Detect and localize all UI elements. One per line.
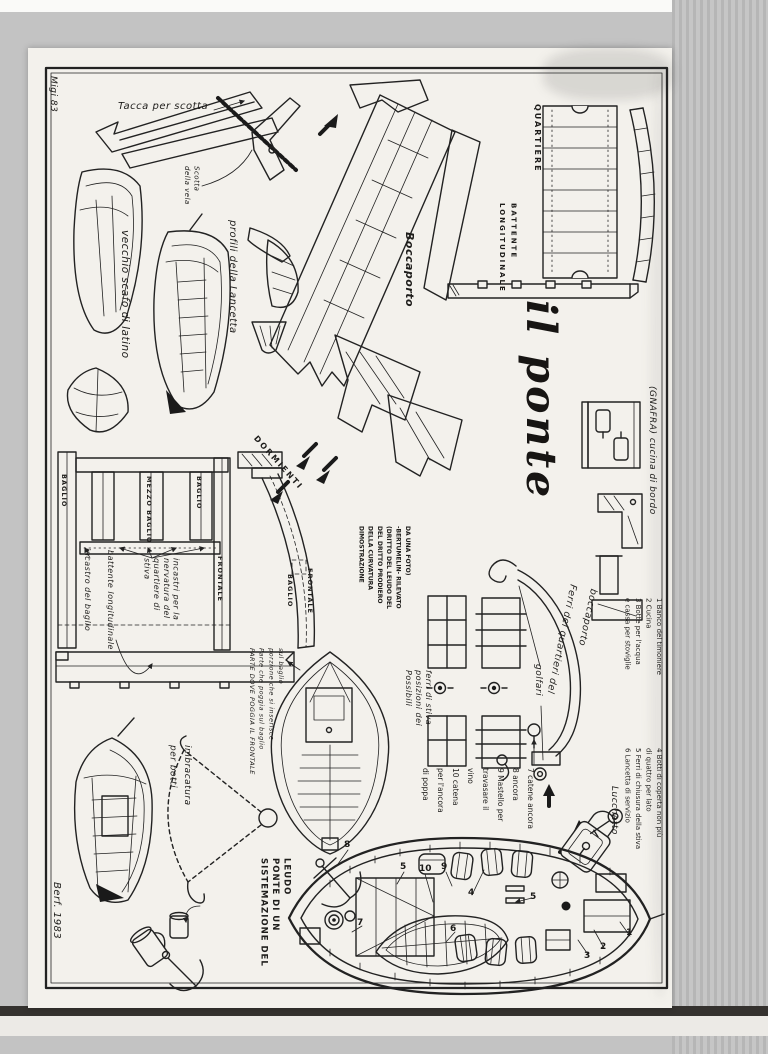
label-line: nervatura del	[161, 558, 171, 620]
dormienti-curved-piece	[238, 452, 314, 648]
label-frontale-curve: FRONTALE	[306, 568, 314, 614]
plan-callout: 5	[530, 892, 536, 902]
legend-items-1-3: 1 Banco del timoniere 2 Cucina 3 Botte p…	[622, 598, 664, 675]
plan-sheet	[28, 48, 672, 1008]
plan-callout: 1	[626, 928, 632, 938]
jug-and-grapnel-sketch	[128, 906, 203, 991]
plan-callout: 7	[357, 918, 363, 928]
legend-line: di quattro per lato	[643, 748, 654, 849]
label-baglio-left: BAGLIO	[60, 474, 68, 507]
legend-items-4-6: 4 Botti di coperta non più di quattro pe…	[622, 748, 664, 849]
label-possibili-posizioni: Possibili posizioni dei ferri di stiva	[403, 670, 433, 726]
label-line: ferri di stiva	[423, 670, 433, 726]
label-dimostrazione-curvatura: DIMOSTRAZIONE DELLA CURVATURA DEL DRITTO…	[356, 526, 412, 609]
label-line: PARTE DOVE POGGIA IL FRONTALE	[246, 648, 256, 775]
label-line: Scotta	[191, 166, 201, 205]
plan-callout: 4	[468, 888, 474, 898]
legend-items-7-10: 7 catene ancora 8 ancora 9 Mastello per …	[418, 768, 538, 829]
ferri-di-stiva-grids	[427, 596, 526, 768]
label-baglio-right: BAGLIO	[195, 476, 203, 509]
label-line: SISTEMAZIONE DEL	[257, 858, 268, 967]
legend-line: vino	[463, 768, 478, 829]
label-line: Parte che poggia sul baglio	[256, 648, 266, 775]
legend-line: 10 catena	[448, 768, 463, 829]
legend-line: 7 catene ancora	[523, 768, 538, 829]
curved-lamination-drawing	[630, 108, 655, 282]
label-line: DELLA CURVATURA	[365, 526, 374, 609]
label-line: BATTENTE	[507, 203, 518, 293]
label-line: porzione che si inserisce	[266, 648, 276, 775]
label-baglio-curve: BAGLIO	[286, 574, 294, 607]
hull-profile-bottom-left	[75, 718, 153, 902]
hull-profile-old-lateen	[74, 169, 142, 333]
label-lucchetto: Lucchetto	[609, 786, 619, 835]
legend-line: 3 Botte per l'acqua	[633, 598, 644, 675]
label-parte-frontale-block: PARTE DOVE POGGIA IL FRONTALE Parte che …	[246, 648, 285, 775]
legend-line: di poppa	[418, 768, 433, 829]
label-line: LEUDO	[280, 858, 291, 967]
artist-mark: Migi 83	[48, 76, 58, 112]
label-line: LONGITUDINALE	[496, 203, 507, 293]
label-line: per botti	[165, 745, 179, 806]
label-line: DIMOSTRAZIONE	[356, 526, 365, 609]
label-incastri-nervatura: incastri per la nervatura del quartiere …	[142, 558, 180, 620]
label-line: Possibili	[403, 670, 413, 726]
legend-line: 2 Cucina	[643, 598, 654, 675]
plan-callout: 6	[450, 924, 456, 934]
label-battente-longitudinale-hand: battente longitudinale	[106, 550, 115, 650]
legend-line: 8 ancora	[508, 768, 523, 829]
label-line: della vela	[181, 166, 191, 205]
label-line: quartiere di	[152, 558, 162, 620]
label-vecchio-scafo: vecchio scafo di latino	[119, 230, 131, 359]
lancetta-profile-sketch	[248, 228, 298, 353]
label-imbracatura-per-botti: imbracatura per botti	[165, 745, 194, 806]
label-line: imbracatura	[179, 745, 193, 806]
label-line: stiva	[142, 558, 152, 620]
label-golfari: golfari	[533, 664, 543, 696]
label-profili-lancetta: profili della Lancetta	[227, 220, 238, 334]
legend-line: 6 Lancetta di servizio	[622, 748, 633, 849]
legend-line: travasare il	[478, 768, 493, 829]
plan-callout: 8	[344, 840, 350, 850]
label-line: DEL DRITTO PRODIERO	[375, 526, 384, 609]
legend-line: per l'ancora	[433, 768, 448, 829]
label-line: DA UNA FOTO)	[402, 526, 411, 609]
label-quartiere: QUARTIERE	[533, 104, 542, 173]
label-gnafra-cucina: (GNAFRA) cucina di bordo	[647, 386, 657, 515]
quartiere-hatch-drawing	[543, 106, 617, 278]
legend-line: 1 Banco del timoniere	[654, 598, 665, 675]
bow-cap-sketch	[67, 368, 128, 432]
label-line: (DRITTO DEL LEUDO DEL	[384, 526, 393, 609]
label-sistemazione-ponte-leudo: SISTEMAZIONE DEL PONTE DI UN LEUDO	[257, 858, 291, 967]
battente-bar-drawing	[448, 281, 638, 298]
label-tacca-per-scotta: Tacca per scotta	[118, 101, 208, 112]
label-boccaporto: Boccaporto	[403, 232, 416, 307]
legend-line: 9 Mastello per	[493, 768, 508, 829]
plan-callout: 5	[400, 862, 406, 872]
plan-callout: 3	[584, 951, 590, 961]
plan-callout: 10	[419, 864, 432, 874]
legend-line: e cassa per stoviglie	[622, 598, 633, 675]
plan-callout: 2	[600, 942, 606, 952]
label-incastro-del-baglio: incastro del baglio	[83, 548, 92, 631]
label-line: PONTE DI UN	[268, 858, 279, 967]
label-mezzo-baglio: MEZZO BAGLIO	[145, 476, 153, 544]
label-scotta-della-vela: Scotta della vela	[181, 166, 201, 205]
leudo-deck-plan	[289, 838, 664, 994]
label-line: sul baglio	[275, 648, 285, 775]
plan-callout: 9	[441, 862, 447, 872]
label-frontale-section: FRONTALE	[216, 556, 224, 602]
label-battente-longitudinale-caps: BATTENTE LONGITUDINALE	[496, 203, 518, 293]
page-title: il ponte	[517, 300, 565, 500]
legend-line: 5 Ferri di chiusura della stiva	[633, 748, 644, 849]
hull-profile-with-frames	[154, 214, 230, 414]
label-line: -BERTUMELIN- RILEVATO	[393, 526, 402, 609]
label-line: incastri per la	[171, 558, 181, 620]
legend-line: 4 Botti di coperta non più	[654, 748, 665, 849]
cucina-box-drawing	[582, 402, 640, 468]
scanned-plan-sheet-stage: Migi 83 Tacca per scotta Scotta della ve…	[0, 0, 768, 1054]
label-line: posizioni dei	[413, 670, 423, 726]
signature: Berf. 1983	[51, 882, 62, 939]
